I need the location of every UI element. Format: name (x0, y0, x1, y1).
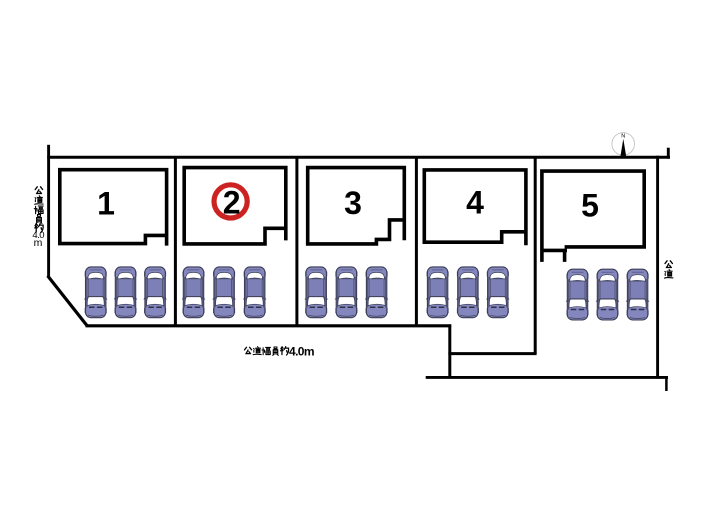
svg-text:m: m (34, 237, 43, 249)
svg-text:2: 2 (223, 185, 241, 221)
svg-text:3: 3 (344, 185, 362, 221)
svg-text:1: 1 (97, 185, 115, 221)
svg-text:4: 4 (466, 184, 484, 220)
svg-text:N: N (621, 134, 625, 140)
svg-text:5: 5 (581, 187, 599, 223)
svg-text:4.0m: 4.0m (289, 345, 314, 359)
